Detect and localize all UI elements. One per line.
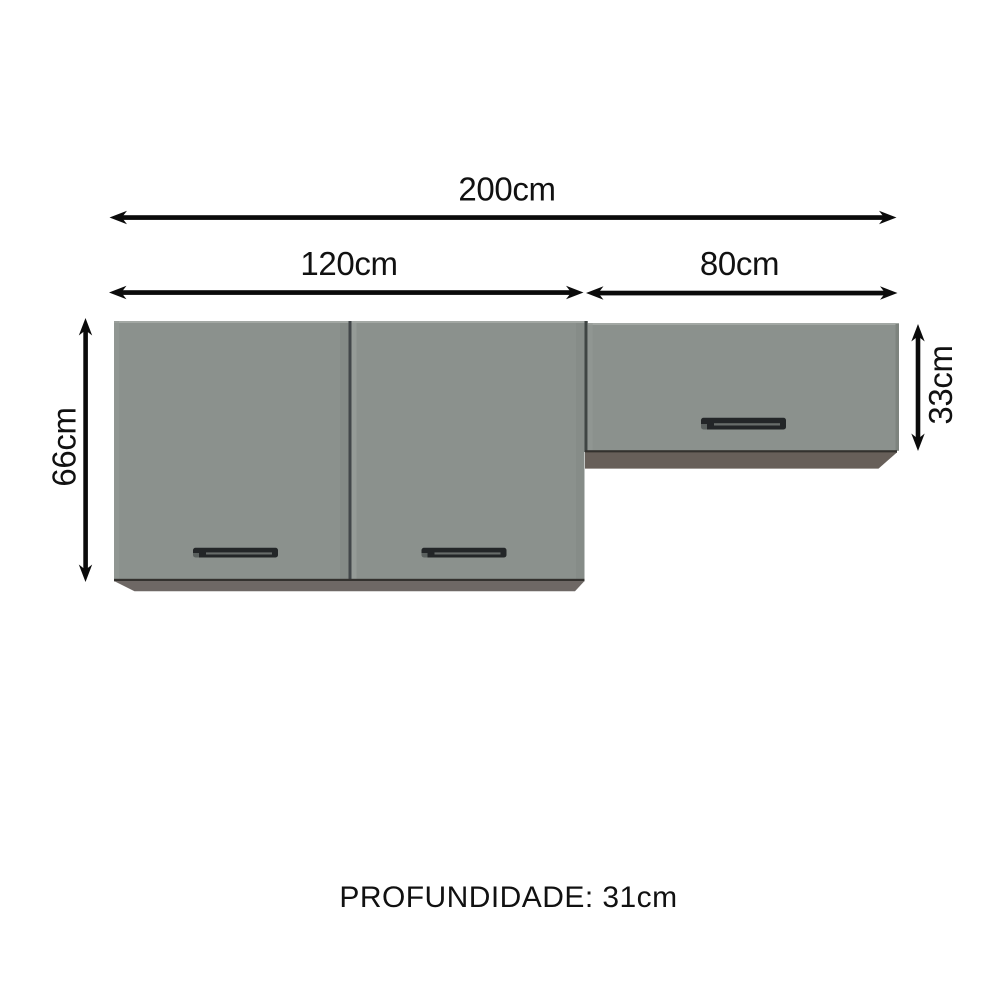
svg-text:200cm: 200cm (458, 171, 555, 208)
svg-text:120cm: 120cm (300, 245, 397, 282)
svg-text:66cm: 66cm (46, 407, 83, 486)
svg-text:80cm: 80cm (700, 245, 779, 282)
svg-text:PROFUNDIDADE: 31cm: PROFUNDIDADE: 31cm (339, 881, 677, 914)
svg-text:33cm: 33cm (922, 345, 959, 424)
